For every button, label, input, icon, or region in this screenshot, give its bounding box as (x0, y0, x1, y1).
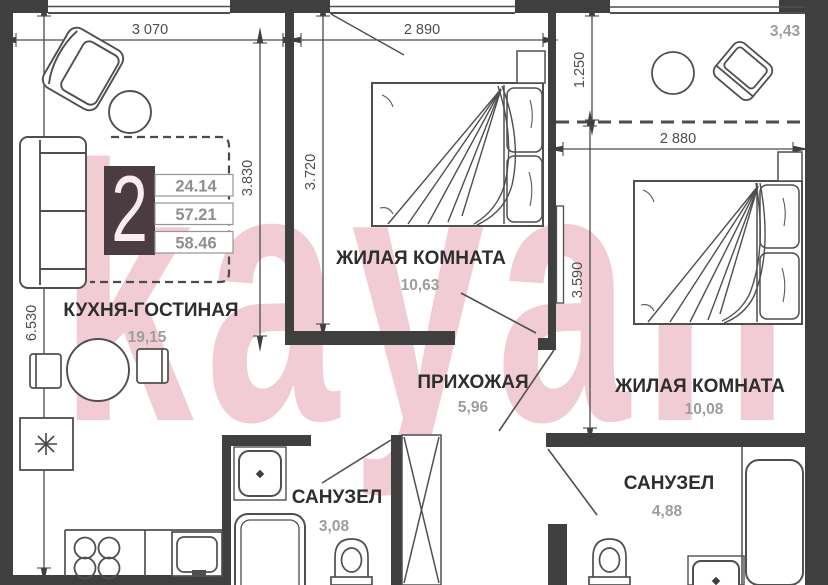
svg-text:ЖИЛАЯ КОМНАТА: ЖИЛАЯ КОМНАТА (614, 376, 785, 397)
svg-text:10,08: 10,08 (685, 401, 724, 418)
svg-text:6.530: 6.530 (24, 305, 40, 341)
svg-text:3.830: 3.830 (240, 160, 256, 196)
svg-text:3,43: 3,43 (770, 23, 801, 40)
svg-text:САНУЗЕЛ: САНУЗЕЛ (624, 473, 714, 494)
svg-text:4,88: 4,88 (652, 503, 683, 520)
svg-text:1.250: 1.250 (572, 52, 588, 88)
svg-text:57.21: 57.21 (175, 206, 216, 224)
svg-text:3.590: 3.590 (570, 262, 586, 298)
svg-text:САНУЗЕЛ: САНУЗЕЛ (292, 487, 382, 508)
svg-text:24.14: 24.14 (175, 178, 217, 196)
svg-text:5,96: 5,96 (458, 399, 489, 416)
svg-text:2 880: 2 880 (660, 131, 696, 147)
svg-text:КУХНЯ-ГОСТИНАЯ: КУХНЯ-ГОСТИНАЯ (63, 300, 238, 321)
svg-text:3 070: 3 070 (132, 22, 168, 38)
svg-text:10,63: 10,63 (401, 277, 440, 294)
svg-text:ПРИХОЖАЯ: ПРИХОЖАЯ (417, 372, 528, 393)
svg-text:3.720: 3.720 (303, 154, 319, 190)
svg-text:2 890: 2 890 (404, 22, 440, 38)
svg-text:19,15: 19,15 (128, 329, 167, 346)
svg-text:2: 2 (111, 158, 148, 262)
svg-text:ЖИЛАЯ КОМНАТА: ЖИЛАЯ КОМНАТА (335, 248, 506, 269)
svg-text:3,08: 3,08 (319, 518, 350, 535)
svg-text:58.46: 58.46 (175, 235, 216, 253)
